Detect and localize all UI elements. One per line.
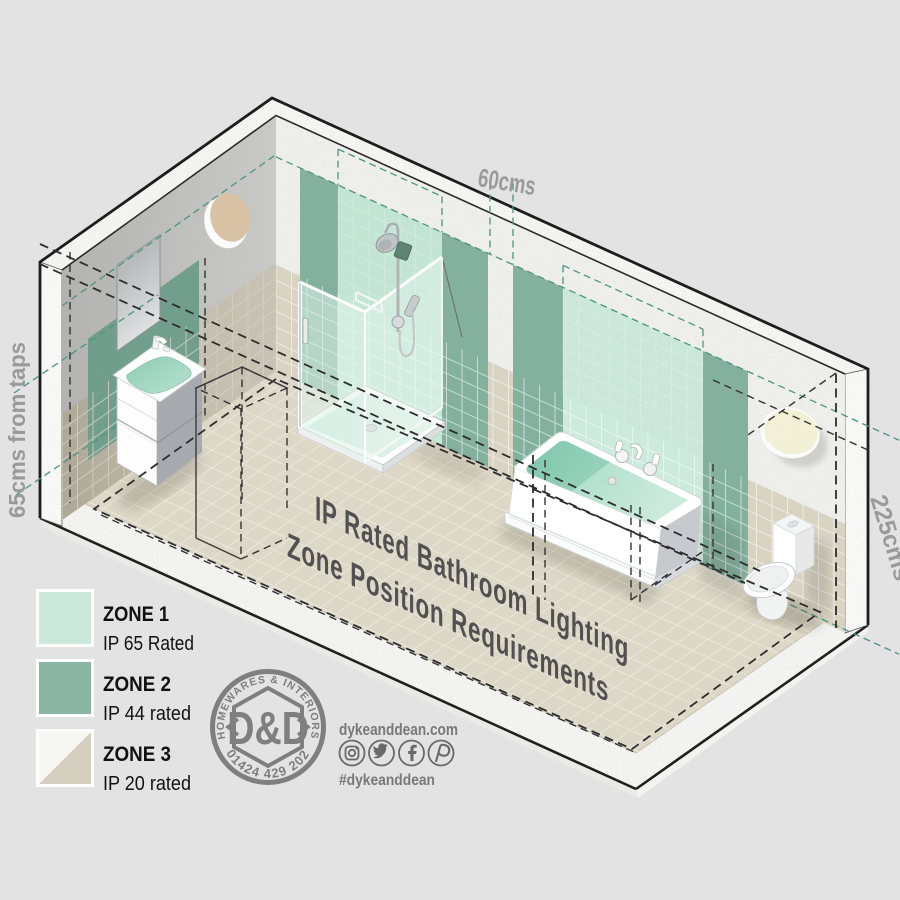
svg-text:IP 44 rated: IP 44 rated	[103, 703, 191, 725]
svg-text:IP 20 rated: IP 20 rated	[103, 773, 191, 795]
svg-text:65cms from taps: 65cms from taps	[4, 342, 30, 518]
svg-text:ZONE 2: ZONE 2	[103, 673, 171, 696]
svg-text:IP 65 Rated: IP 65 Rated	[103, 633, 194, 655]
svg-text:ZONE 1: ZONE 1	[103, 603, 169, 626]
svg-text:D&D: D&D	[227, 702, 309, 753]
svg-text:ZONE 3: ZONE 3	[103, 743, 171, 766]
svg-text:dykeanddean.com: dykeanddean.com	[339, 720, 458, 739]
svg-text:#dykeanddean: #dykeanddean	[339, 772, 435, 789]
